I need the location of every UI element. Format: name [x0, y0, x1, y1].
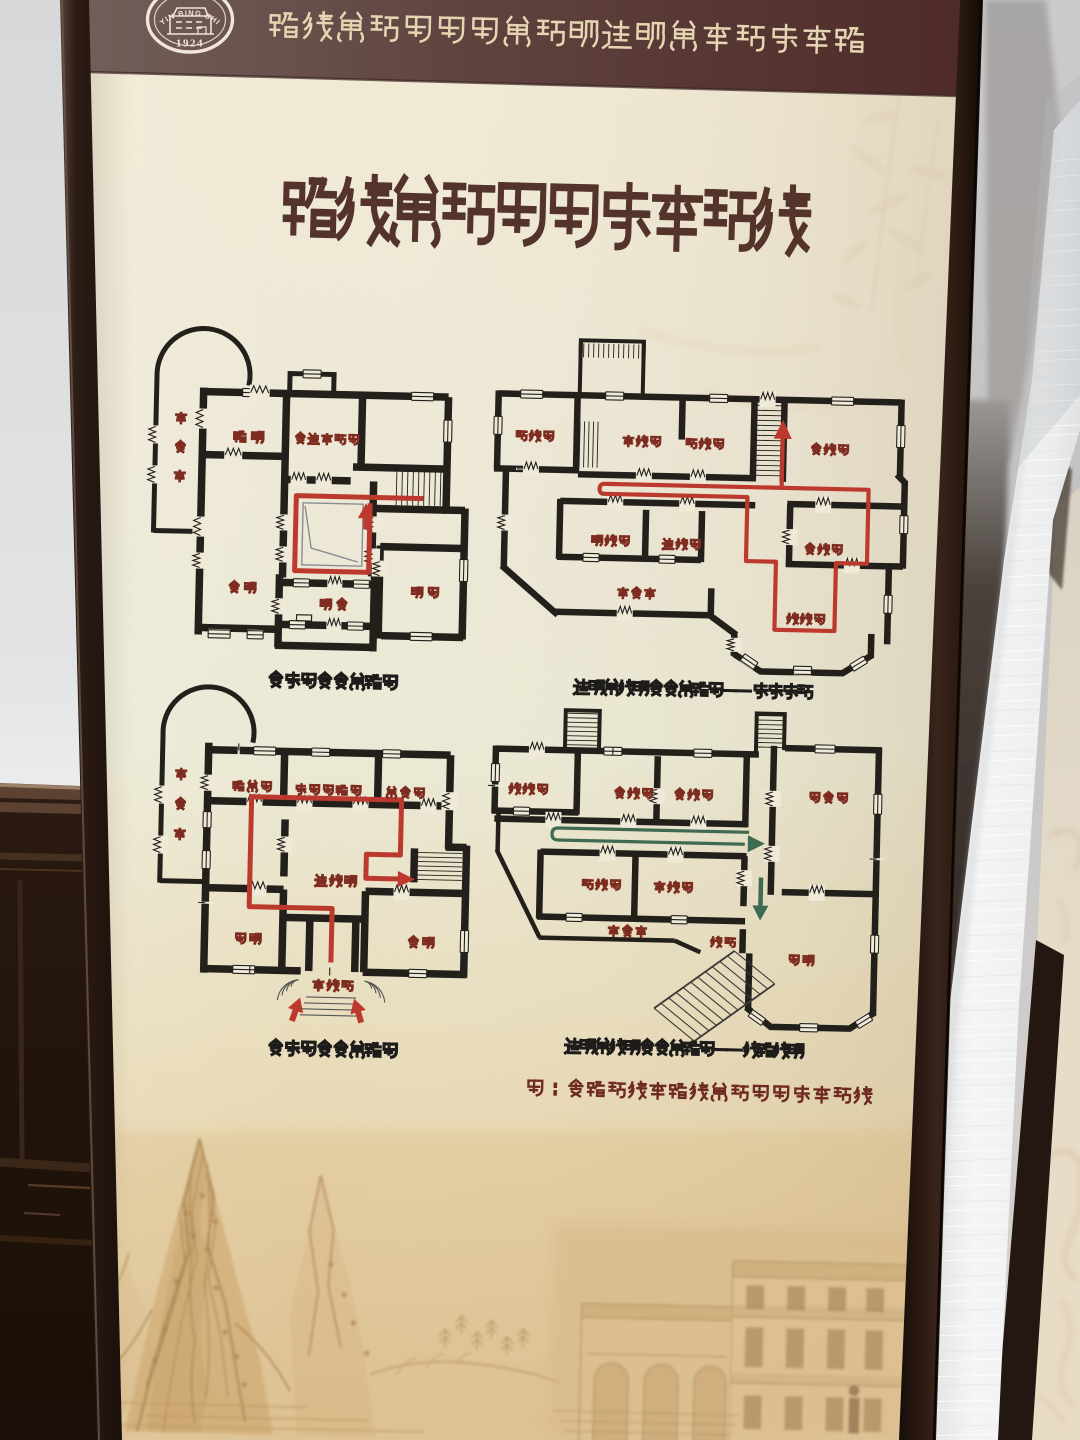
svg-text:1924: 1924: [176, 38, 204, 50]
